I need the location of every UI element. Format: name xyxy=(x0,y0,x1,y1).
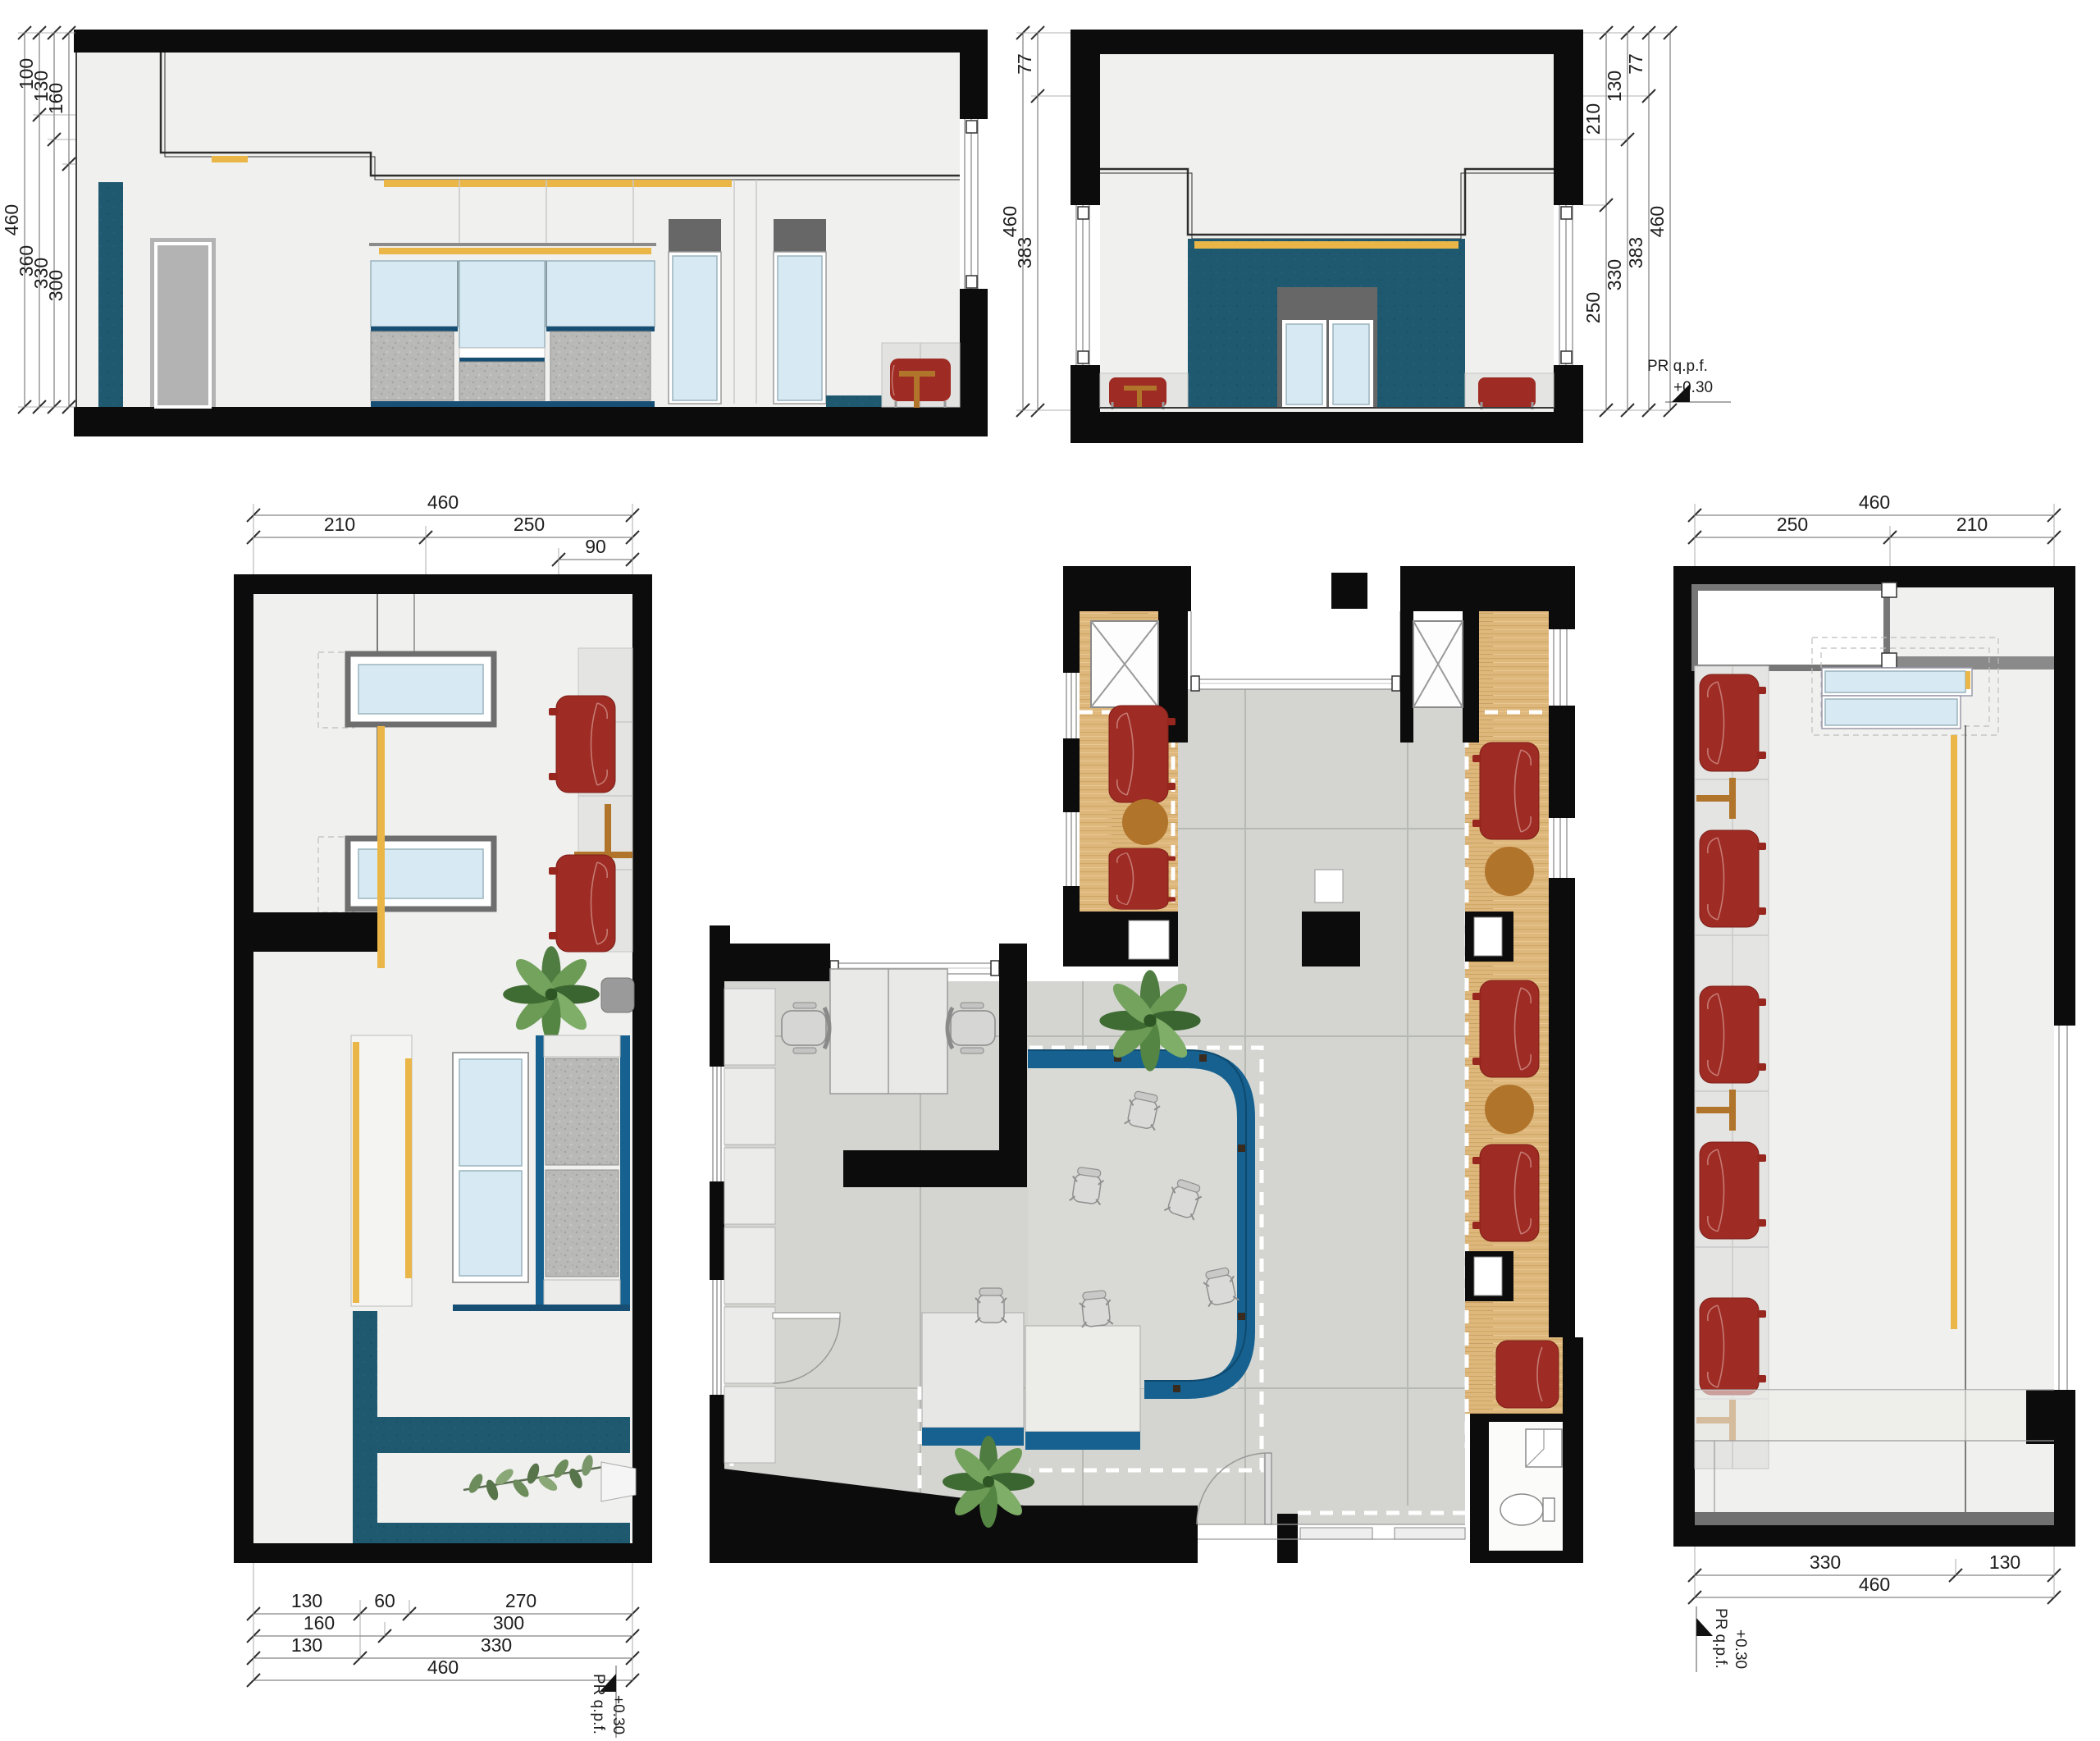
threshold-band xyxy=(1695,1512,2054,1525)
level-note-label: PR q.p.f. xyxy=(1712,1608,1729,1669)
waiting-niche xyxy=(882,343,960,408)
service-counter xyxy=(351,1035,412,1306)
dimension-label: 130 xyxy=(1604,71,1625,102)
dimension-label: 210 xyxy=(1582,103,1604,135)
level-note: PR q.p.f. +0.30 xyxy=(1647,358,1731,402)
floor-box xyxy=(1315,870,1343,902)
partition-wall xyxy=(234,912,377,952)
service-desk xyxy=(922,1313,1024,1428)
dimension-label: 300 xyxy=(493,1612,524,1634)
dimension-label: 250 xyxy=(1582,292,1604,323)
plan-c-dimensions-bottom: 130 60 270 160 300 130 330 460 xyxy=(247,1563,639,1687)
level-note-label: PR q.p.f. xyxy=(1647,358,1708,375)
armchair-symbol xyxy=(1700,674,1766,771)
dimension-label: 250 xyxy=(514,514,545,535)
armchair-symbol xyxy=(1472,743,1539,839)
door xyxy=(150,238,216,407)
dimension-label: 330 xyxy=(1810,1551,1841,1573)
level-marker-icon xyxy=(1696,1618,1713,1636)
display-window-plan xyxy=(1822,668,1972,729)
glass-door xyxy=(669,219,721,404)
light-strip xyxy=(384,180,732,187)
pillar xyxy=(1302,912,1360,966)
dimension-label: 130 xyxy=(291,1590,322,1611)
dimension-label: 210 xyxy=(1956,514,1988,535)
elevation-a-dimensions: 460 100 360 130 330 160 300 xyxy=(1,26,75,414)
upholstered-cabinet xyxy=(536,1035,630,1306)
armchair-symbol xyxy=(549,855,615,952)
armchair-symbol xyxy=(549,696,615,793)
level-note-label: PR q.p.f. xyxy=(590,1674,607,1734)
dimension-label: 90 xyxy=(585,536,606,557)
dimension-label: 210 xyxy=(324,514,355,535)
armchair-side-view xyxy=(1478,377,1536,409)
dimension-label: 383 xyxy=(1014,237,1035,268)
dimension-label: 460 xyxy=(427,1656,459,1678)
dimension-label: 270 xyxy=(505,1590,536,1611)
armchair-symbol xyxy=(1700,1298,1766,1395)
dimension-label: 160 xyxy=(45,83,66,114)
elevation-b: 460 77 383 210 250 130 330 77 383 460 PR… xyxy=(999,26,1731,443)
bench-seat-symbol xyxy=(1496,1341,1559,1408)
armchair-symbol xyxy=(1472,980,1539,1077)
light-strip xyxy=(1951,735,1957,1329)
plant-pot xyxy=(601,1462,636,1501)
armchair-symbol xyxy=(1700,1142,1766,1239)
plan-d-dimensions-top: 460 250 210 xyxy=(1688,491,2061,566)
plant-symbol xyxy=(1099,970,1200,1071)
elevation-b-dimensions-left: 460 77 383 xyxy=(999,26,1071,417)
dimension-label: 383 xyxy=(1625,237,1646,268)
dimension-label: 250 xyxy=(1777,514,1808,535)
plant-symbol xyxy=(943,1436,1034,1528)
dimension-label: 77 xyxy=(1014,53,1035,75)
level-note-value: +0.30 xyxy=(1673,379,1713,396)
service-desk xyxy=(1025,1326,1140,1432)
level-note: PR q.p.f. +0.30 xyxy=(590,1666,627,1738)
plan-d: 460 250 210 330 130 460 PR q.p.f. +0.30 xyxy=(1673,491,2075,1672)
glass-display-case xyxy=(453,1053,528,1282)
plant-pot xyxy=(601,978,634,1012)
elevation-a-right-wall-window xyxy=(960,30,988,436)
armchair-side-view xyxy=(1109,377,1166,409)
toilet-icon xyxy=(1500,1494,1554,1525)
round-table-symbol xyxy=(1485,1085,1534,1134)
dimension-label: 460 xyxy=(1859,1574,1890,1595)
elevation-a: 460 100 360 130 330 160 300 xyxy=(1,26,988,436)
dimension-label: 330 xyxy=(1604,259,1625,290)
elevation-a-ceiling-slab xyxy=(74,30,988,53)
armchair-symbol xyxy=(1109,706,1176,802)
round-table-symbol xyxy=(1485,847,1534,896)
sink-icon xyxy=(1526,1429,1562,1467)
entry-mat xyxy=(1395,1528,1465,1539)
dimension-label: 160 xyxy=(304,1612,335,1634)
entry-mat xyxy=(1300,1528,1372,1539)
dimension-label: 300 xyxy=(45,270,66,301)
storefront-glazing xyxy=(1191,611,1400,691)
elevation-b-left-wall-window xyxy=(1071,54,1100,412)
elevation-b-floor-slab xyxy=(1071,412,1583,443)
dimension-label: 60 xyxy=(374,1590,395,1611)
elevator-shaft xyxy=(1413,621,1463,707)
dimension-label: 130 xyxy=(291,1634,322,1656)
plan-c: 460 210 250 90 130 60 270 160 300 130 33… xyxy=(234,491,652,1738)
level-note: PR q.p.f. +0.30 xyxy=(1696,1606,1749,1672)
entry-glass-door xyxy=(1277,287,1377,408)
round-table-symbol xyxy=(1122,799,1168,845)
elevation-b-right-wall-window xyxy=(1554,54,1583,412)
teal-wall-panel xyxy=(98,182,123,407)
dimension-label: 460 xyxy=(999,206,1020,237)
light-strip xyxy=(377,726,385,968)
dimension-label: 130 xyxy=(1989,1551,2020,1573)
armchair-symbol xyxy=(1109,848,1176,909)
level-note-value: +0.30 xyxy=(1732,1629,1749,1669)
architectural-drawing-sheet: 460 100 360 130 330 160 300 xyxy=(0,0,2100,1741)
dimension-label: 460 xyxy=(1,204,22,235)
light-strip xyxy=(1194,241,1459,249)
elevator-shaft xyxy=(1091,621,1158,707)
dimension-label: 330 xyxy=(481,1634,512,1656)
light-strip xyxy=(212,156,248,162)
teal-baseboard xyxy=(826,395,882,407)
armchair-symbol xyxy=(1472,1145,1539,1241)
plant-symbol xyxy=(503,946,600,1043)
dimension-label: 460 xyxy=(427,491,459,513)
dimension-label: 77 xyxy=(1625,53,1646,75)
main-floor-plan xyxy=(710,566,1583,1563)
dimension-label: 460 xyxy=(1859,491,1890,513)
plan-d-dimensions-bottom: 330 130 460 xyxy=(1688,1547,2061,1604)
wc-room xyxy=(1489,1422,1563,1551)
elevation-b-ceiling-slab xyxy=(1071,30,1583,54)
armchair-symbol xyxy=(1700,830,1766,927)
task-chair-symbol xyxy=(975,1288,1007,1323)
armchair-symbol xyxy=(1700,986,1766,1083)
elevation-a-floor-slab xyxy=(74,407,988,436)
plan-c-dimensions-top: 460 210 250 90 xyxy=(247,491,639,574)
level-note-value: +0.30 xyxy=(609,1695,627,1734)
dimension-label: 460 xyxy=(1646,206,1668,237)
armchair-side-view xyxy=(890,359,951,408)
glass-door xyxy=(774,219,826,404)
